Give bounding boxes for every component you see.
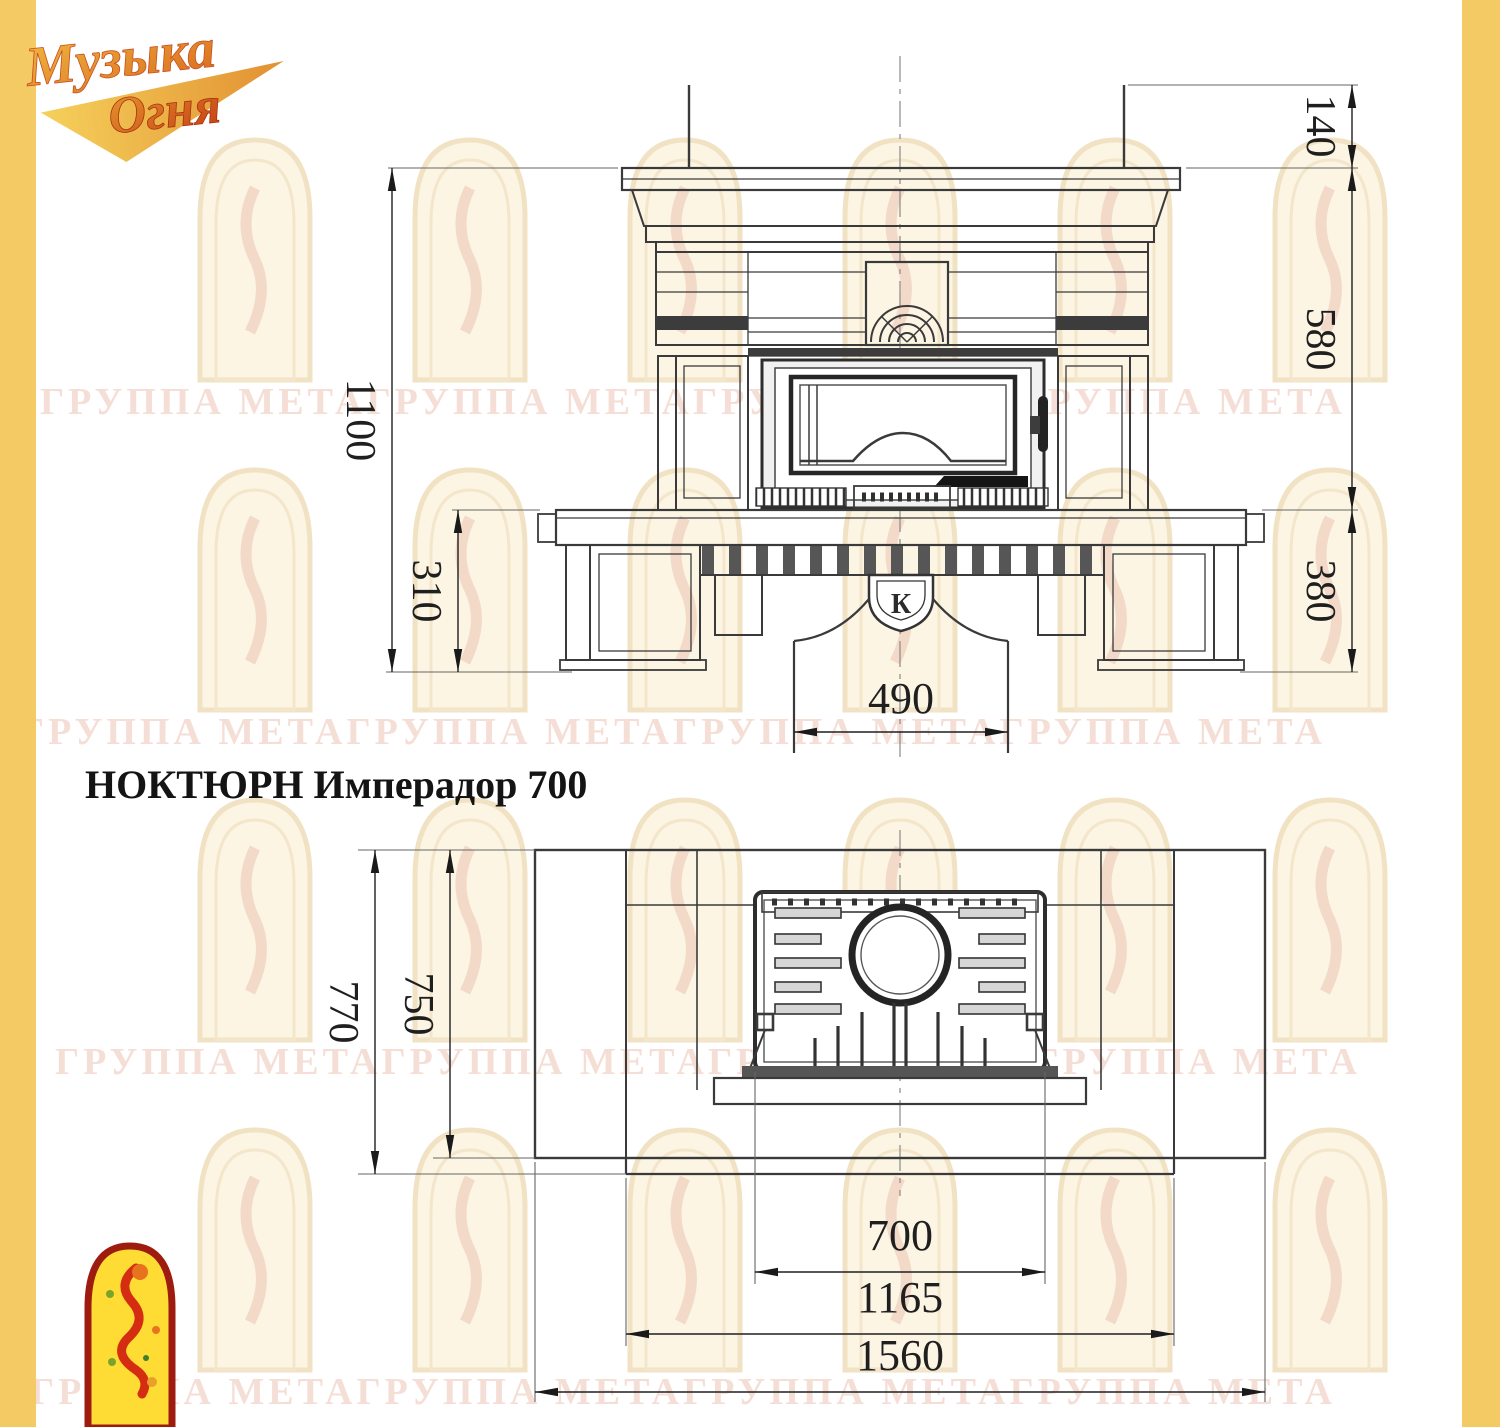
vent-grille-left — [756, 488, 846, 506]
dim-label-750: 750 — [395, 973, 441, 1036]
lintel-bar — [748, 348, 1058, 356]
logo-word-2: Огня — [106, 77, 224, 145]
dim-label-580: 580 — [1297, 308, 1343, 371]
dim-label-1560: 1560 — [856, 1331, 944, 1380]
right-yellow-border — [1462, 0, 1500, 1427]
model-title: НОКТЮРН Имперадор 700 — [85, 762, 587, 807]
watermark-text-row: ГРУППА МЕТАГРУППА МЕТАГРУППА МЕТАГРУППА … — [40, 381, 1346, 423]
watermark-text-row: ГРУППА МЕТАГРУППА МЕТАГРУППА МЕТАГРУППА … — [55, 1041, 1361, 1083]
insert-plan — [714, 892, 1086, 1104]
fireplace-drawing-page: ГРУППА МЕТАГРУППА МЕТАГРУППА МЕТАГРУППА … — [0, 0, 1500, 1427]
dim-label-770: 770 — [320, 981, 366, 1044]
flue-opening — [852, 907, 948, 1003]
dim-label-310: 310 — [403, 560, 449, 623]
dim-label-1100: 1100 — [337, 379, 383, 461]
dim-label-140: 140 — [1297, 95, 1343, 158]
frieze-dark-band-right — [1056, 316, 1148, 330]
insert-front-bar — [742, 1066, 1058, 1078]
door-handle-hinge — [1030, 416, 1040, 434]
door-glass — [791, 377, 1015, 473]
drawing-canvas: ГРУППА МЕТАГРУППА МЕТАГРУППА МЕТАГРУППА … — [0, 0, 1500, 1427]
left-yellow-border — [0, 0, 36, 1427]
dim-label-380: 380 — [1297, 560, 1343, 623]
emblem-letter: К — [891, 589, 912, 620]
frieze-dark-band-left — [656, 316, 748, 330]
mascot-flame-emblem — [88, 1246, 172, 1427]
watermark-text-row: ГРУППА МЕТАГРУППА МЕТАГРУППА МЕТАГРУППА … — [20, 711, 1326, 753]
dim-label-490: 490 — [868, 674, 934, 723]
dim-label-700: 700 — [867, 1211, 933, 1260]
firebox-door — [748, 356, 1058, 510]
vent-grille-right — [958, 488, 1048, 506]
dim-cornice-height: 140 — [1297, 85, 1352, 168]
dim-label-1165: 1165 — [857, 1273, 943, 1322]
